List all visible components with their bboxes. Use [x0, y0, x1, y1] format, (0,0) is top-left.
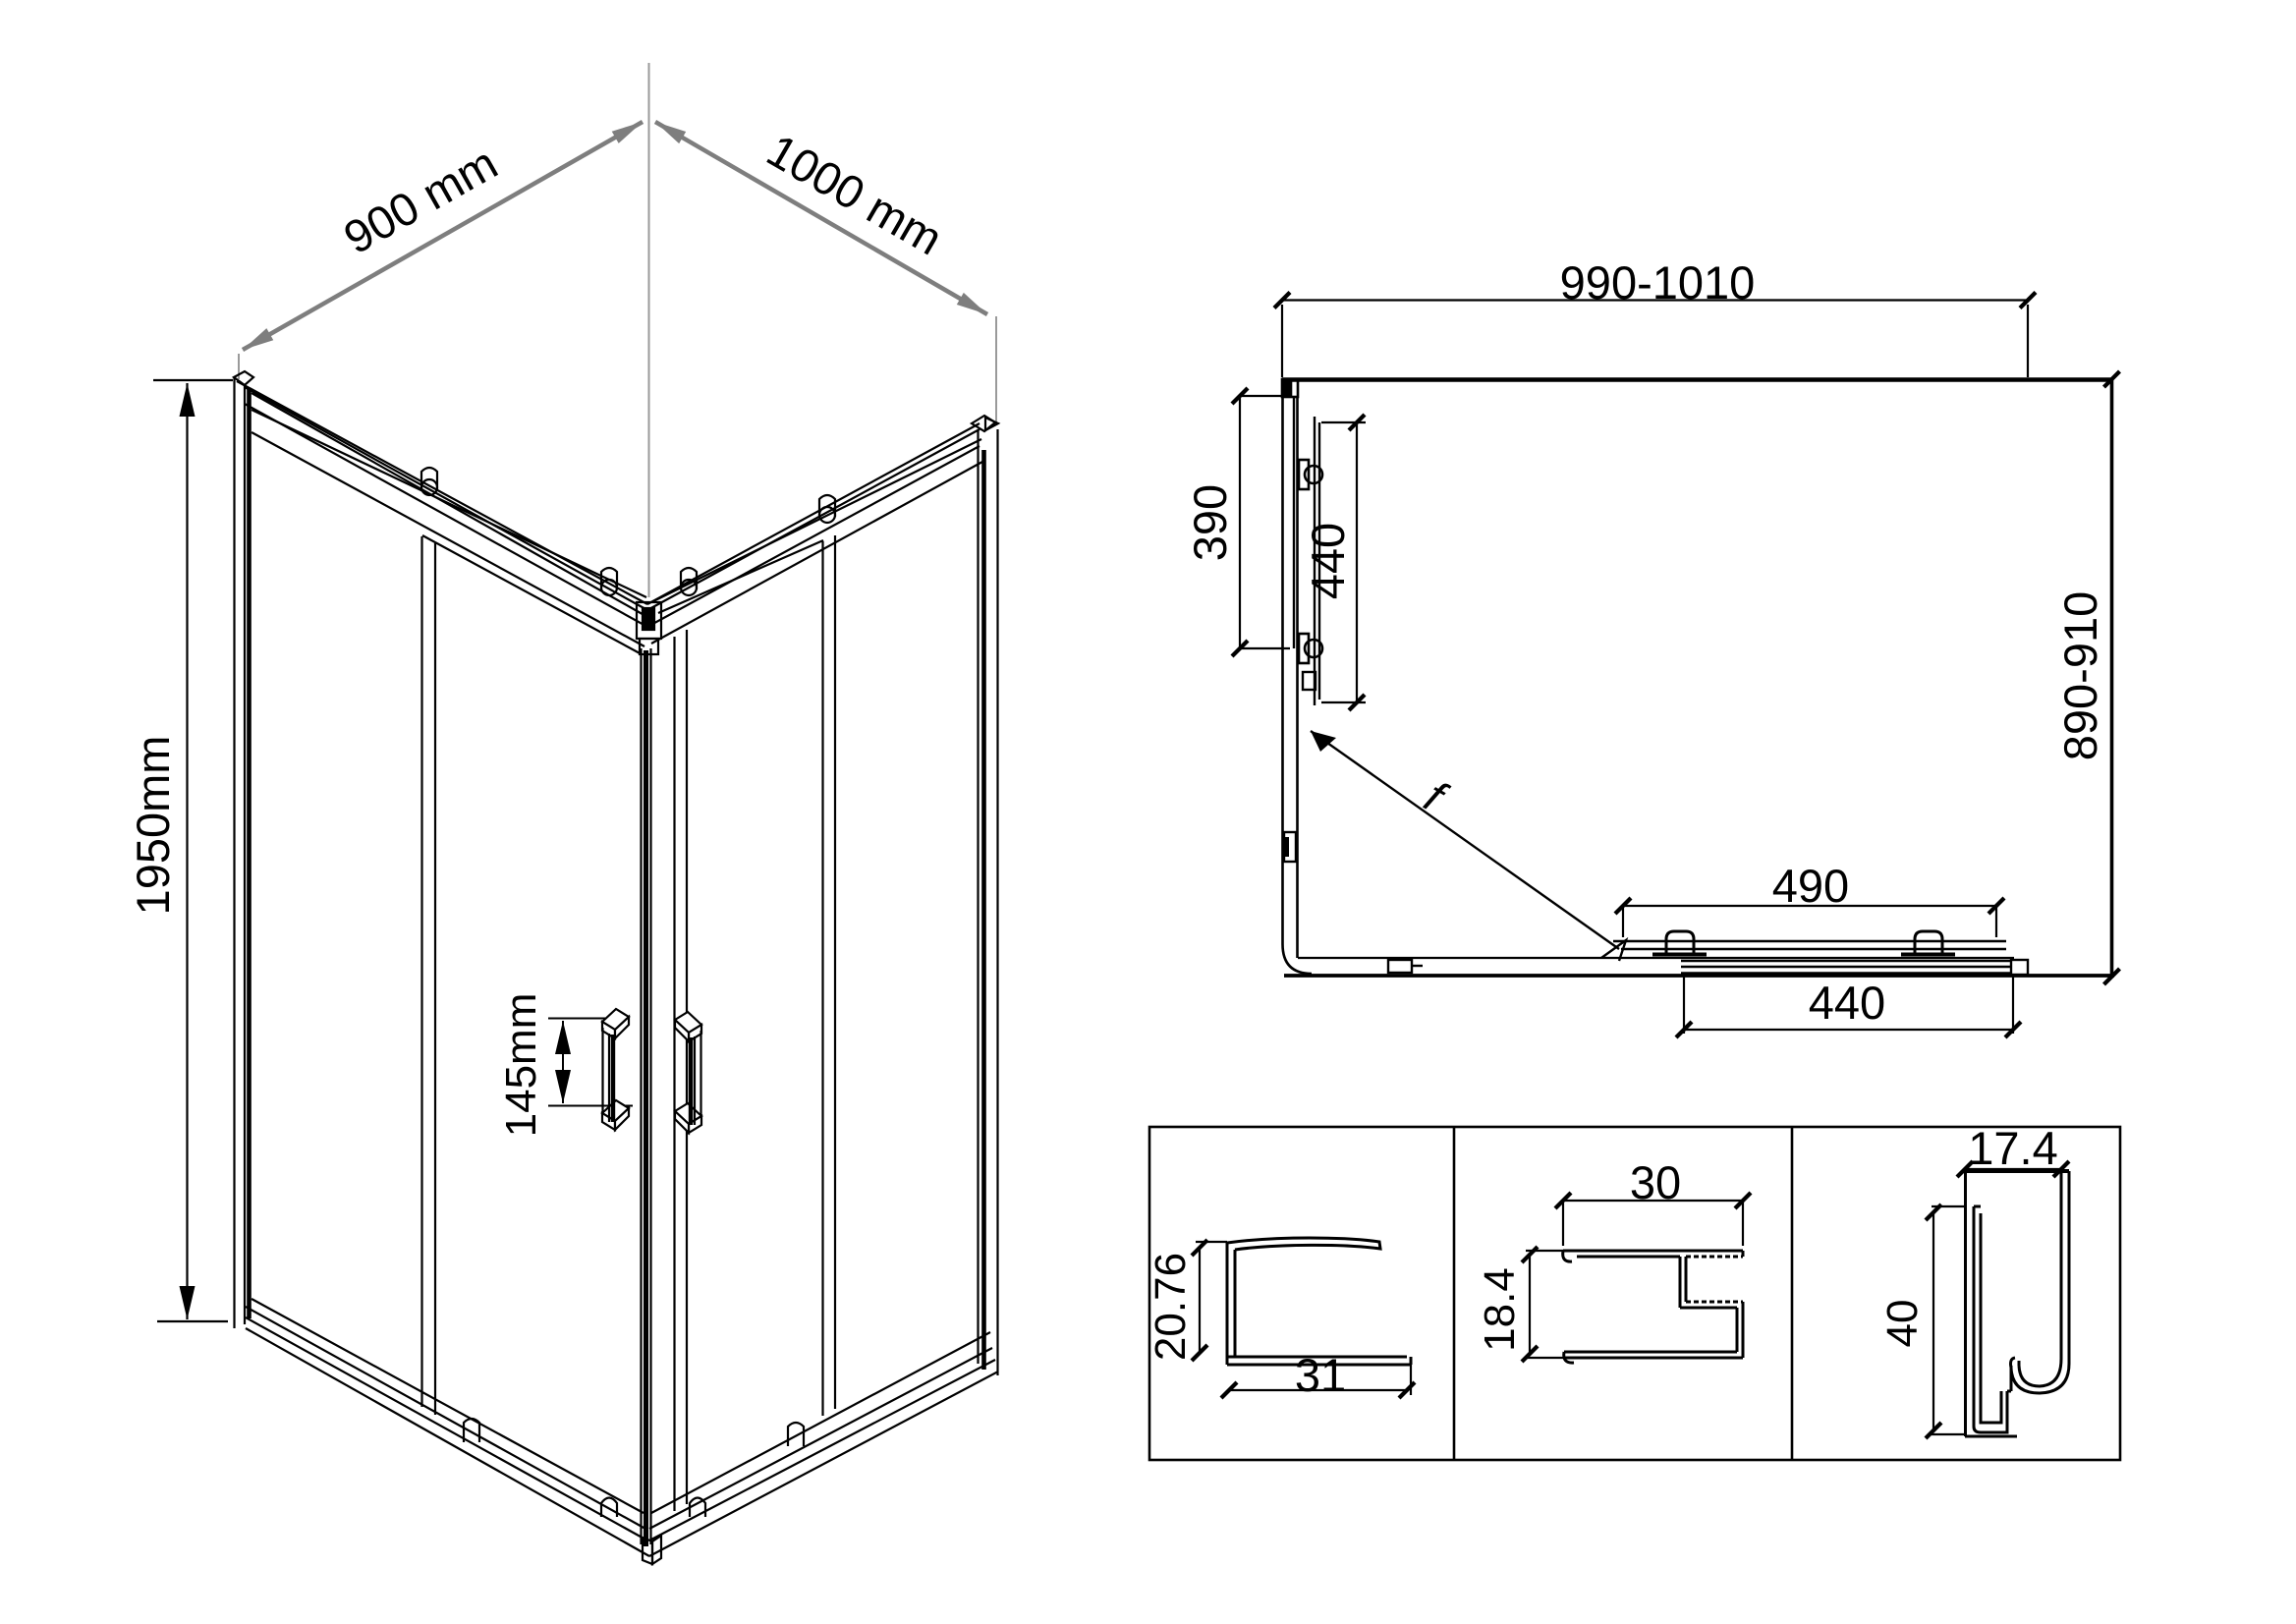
svg-text:440: 440	[1302, 523, 1354, 599]
svg-text:990-1010: 990-1010	[1560, 256, 1756, 308]
svg-text:17.4: 17.4	[1968, 1122, 2057, 1174]
svg-text:440: 440	[1809, 977, 1885, 1029]
svg-text:890-910: 890-910	[2054, 591, 2106, 761]
svg-text:390: 390	[1184, 484, 1236, 561]
svg-text:145mm: 145mm	[497, 993, 545, 1138]
svg-text:40: 40	[1878, 1300, 1927, 1348]
svg-text:490: 490	[1772, 860, 1849, 912]
svg-text:18.4: 18.4	[1476, 1267, 1524, 1352]
svg-text:20.76: 20.76	[1147, 1253, 1195, 1361]
svg-text:30: 30	[1630, 1156, 1681, 1208]
svg-text:1950mm: 1950mm	[127, 736, 179, 916]
svg-text:31: 31	[1295, 1349, 1346, 1401]
